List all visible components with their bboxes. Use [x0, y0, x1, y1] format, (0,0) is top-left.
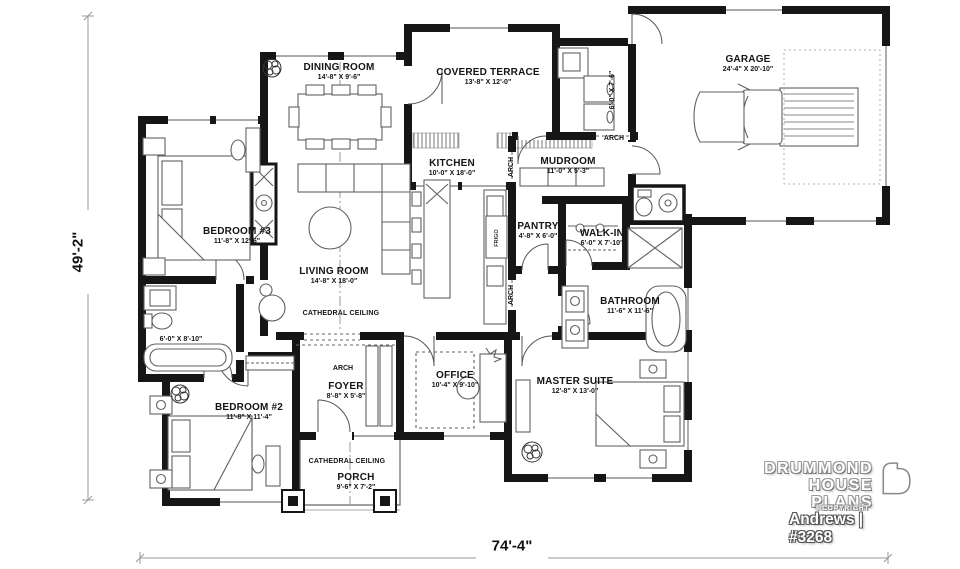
room-label-kitchen: KITCHEN10'-0" X 18'-0"	[429, 158, 476, 178]
room-label-pantry: PANTRY4'-8" X 6'-0"	[517, 221, 558, 241]
room-label-mudroom: MUDROOM11'-0" X 5'-3"	[540, 156, 595, 176]
brand-line1: DRUMMOND	[745, 461, 873, 478]
room-label-terrace: COVERED TERRACE13'-8" X 12'-0"	[436, 67, 540, 87]
fridge-label: FRIGO	[494, 229, 500, 246]
arch-label-kitchen-top: ARCH	[508, 157, 516, 177]
bath2-dims-label: 6'-0" X 8'-10"	[160, 336, 203, 344]
depth-dimension: 49'-2"	[69, 232, 86, 273]
floor-plan-sheet: DINING ROOM14'-8" X 9'-6" COVERED TERRAC…	[0, 0, 960, 569]
room-label-garage: GARAGE24'-4" X 20'-10"	[723, 54, 773, 74]
room-label-living: LIVING ROOM14'-8" X 18'-0"	[299, 266, 368, 286]
arch-label-foyer: ARCH	[333, 365, 353, 373]
room-label-dining: DINING ROOM14'-8" X 9'-6"	[303, 62, 374, 82]
plan-name-number: Andrews | #3268	[789, 511, 903, 547]
room-label-foyer: FOYER8'-8" X 5'-8"	[327, 381, 366, 401]
cathedral-ceiling-label-living: CATHEDRAL CEILING	[303, 310, 380, 318]
room-label-bedroom3: BEDROOM #311'-8" X 12'-6"	[203, 226, 271, 246]
room-label-master: MASTER SUITE12'-8" X 13'-0"	[537, 376, 614, 396]
cathedral-ceiling-label-porch: CATHEDRAL CEILING	[309, 458, 386, 466]
room-label-office: OFFICE10'-4" X 9'-10"	[432, 370, 479, 390]
laundry-dims-label: 6'-0" X 7'-6"	[609, 71, 617, 110]
arch-label-mudroom: ARCH	[604, 135, 624, 143]
arch-label-kitchen-bottom: ARCH	[508, 285, 516, 305]
room-label-walkin: WALK-IN6'-0" X 7'-10"	[580, 228, 624, 248]
room-label-bedroom2: BEDROOM #211'-8" X 11'-4"	[215, 402, 283, 422]
width-dimension: 74'-4"	[492, 537, 533, 554]
room-label-porch: PORCH9'-6" X 7'-2"	[337, 472, 376, 492]
room-label-bathroom: BATHROOM11'-6" X 11'-6"	[600, 296, 660, 316]
